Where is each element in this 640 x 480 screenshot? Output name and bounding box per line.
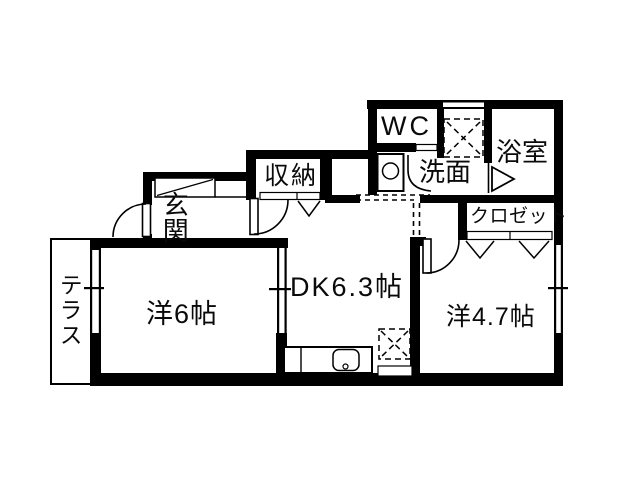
entrance-dk-door-leaf <box>250 199 258 235</box>
label-entrance: 玄関 <box>160 191 187 243</box>
wc-door-opening <box>416 145 437 151</box>
floor-plan-canvas: WC 洗面 浴室 クロゼット 収納 玄関 テラス 洋6帖 DK6.3帖 洋4.7… <box>0 0 640 480</box>
bath-door-triangle <box>492 167 514 191</box>
wall-closet-left <box>458 195 467 240</box>
label-western-room-6: 洋6帖 <box>146 300 218 328</box>
storage-opening-strip <box>260 193 320 200</box>
wall-washroom-bottom-left <box>325 195 360 203</box>
closet-bifold-icon <box>519 241 549 258</box>
wall-west6-top <box>90 238 288 248</box>
wall-dk-west47-divider <box>410 240 420 377</box>
partition-line <box>285 248 287 333</box>
window-tick <box>84 287 104 289</box>
wall-closet-top <box>458 195 563 203</box>
partition-line <box>277 248 279 333</box>
label-closet: クロゼット <box>470 207 568 227</box>
washing-machine-drum-icon <box>383 163 399 179</box>
refrigerator-space-dashed-square <box>379 329 410 359</box>
window-top <box>443 103 484 108</box>
label-storage: 収納 <box>264 163 318 189</box>
washer-pan-diagonal <box>447 122 480 154</box>
window-tick <box>548 287 568 289</box>
label-dining-kitchen: DK6.3帖 <box>290 273 404 301</box>
label-western-room-47: 洋4.7帖 <box>446 304 536 330</box>
wall-bottom <box>90 373 563 386</box>
entrance-dk-door-swing-arc <box>254 200 288 234</box>
front-door-leaf <box>143 204 151 237</box>
washer-pan-dashed-square <box>444 119 483 157</box>
floor-plan-drawing <box>0 0 640 480</box>
window-tick <box>269 288 291 290</box>
wall-storage-top <box>246 150 377 159</box>
window-line <box>90 250 92 333</box>
closet-bifold-icon <box>466 241 494 258</box>
front-door-swing-arc <box>113 204 146 237</box>
storage-bifold-icon <box>298 201 320 216</box>
window-line <box>99 250 101 333</box>
label-terrace: テラス <box>57 273 81 348</box>
wall-storage-right <box>320 150 332 200</box>
wall-wc-alcove-divider <box>437 107 444 158</box>
bottom-wall-notch <box>378 366 412 376</box>
label-bathroom: 浴室 <box>496 139 548 166</box>
wall-alcove-bath-divider <box>484 107 492 163</box>
sink-drain-icon <box>343 364 348 369</box>
label-wc: WC <box>381 112 432 140</box>
wall-entrance-left-upper <box>143 172 152 205</box>
west47-door-leaf <box>423 239 431 273</box>
label-washroom: 洗面 <box>419 159 471 186</box>
